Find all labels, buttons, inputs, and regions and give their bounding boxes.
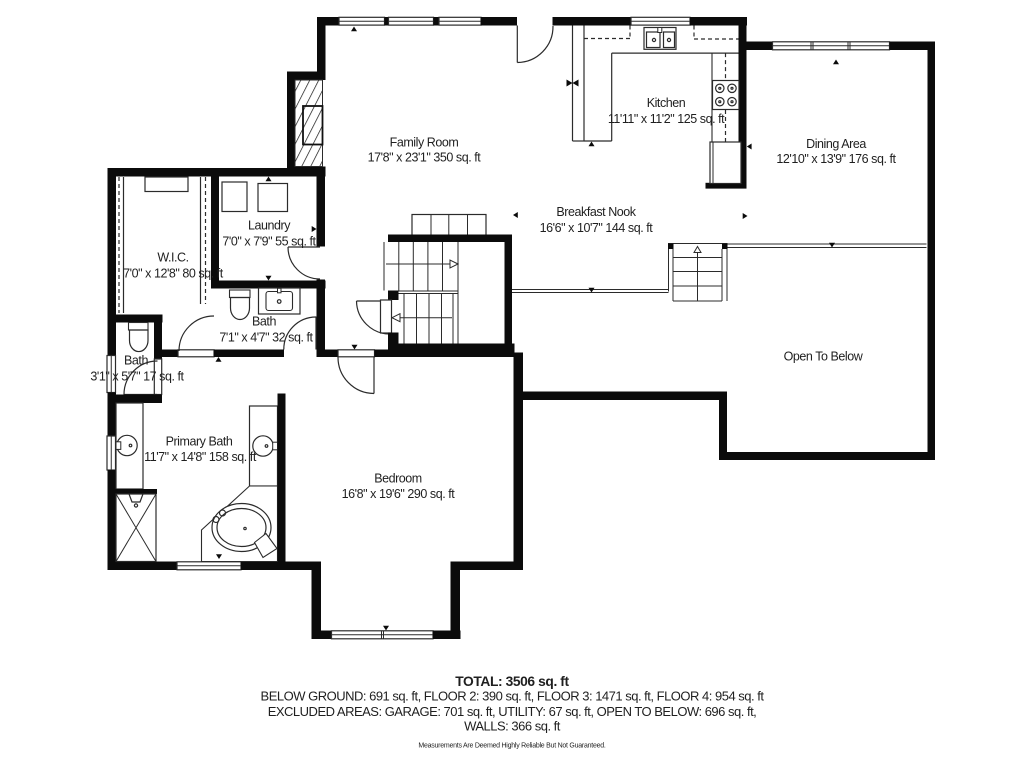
svg-text:TOTAL: 3506 sq. ft: TOTAL: 3506 sq. ft (455, 674, 569, 689)
svg-text:Primary Bath: Primary Bath (166, 435, 233, 449)
svg-text:Bath: Bath (252, 315, 276, 329)
svg-text:Bath: Bath (124, 354, 148, 368)
svg-text:17'8" x 23'1" 350 sq. ft: 17'8" x 23'1" 350 sq. ft (368, 151, 482, 165)
svg-text:Open To Below: Open To Below (784, 350, 864, 364)
svg-text:BELOW GROUND: 691 sq. ft, FLOO: BELOW GROUND: 691 sq. ft, FLOOR 2: 390 s… (261, 689, 765, 704)
svg-text:12'10" x 13'9" 176 sq. ft: 12'10" x 13'9" 176 sq. ft (776, 152, 896, 166)
svg-text:3'1" x 5'7" 17 sq. ft: 3'1" x 5'7" 17 sq. ft (90, 370, 184, 384)
svg-text:Laundry: Laundry (248, 219, 291, 233)
svg-text:W.I.C.: W.I.C. (157, 251, 188, 265)
svg-text:7'1" x 4'7" 32 sq. ft: 7'1" x 4'7" 32 sq. ft (219, 331, 313, 345)
svg-text:EXCLUDED AREAS: GARAGE: 701 sq: EXCLUDED AREAS: GARAGE: 701 sq. ft, UTIL… (268, 704, 757, 719)
svg-text:WALLS: 366 sq. ft: WALLS: 366 sq. ft (464, 719, 561, 734)
svg-text:Bedroom: Bedroom (374, 472, 422, 486)
svg-text:11'7" x 14'8" 158 sq. ft: 11'7" x 14'8" 158 sq. ft (144, 450, 257, 464)
svg-text:7'0" x 7'9" 55 sq. ft: 7'0" x 7'9" 55 sq. ft (222, 235, 316, 249)
svg-text:16'6" x 10'7" 144 sq. ft: 16'6" x 10'7" 144 sq. ft (540, 221, 654, 235)
svg-text:Breakfast Nook: Breakfast Nook (556, 205, 636, 219)
svg-text:Measurements Are Deemed Highly: Measurements Are Deemed Highly Reliable … (418, 743, 605, 750)
svg-text:7'0" x 12'8" 80 sq. ft: 7'0" x 12'8" 80 sq. ft (123, 267, 224, 281)
svg-text:16'8" x 19'6" 290 sq. ft: 16'8" x 19'6" 290 sq. ft (342, 487, 456, 501)
svg-text:Dining Area: Dining Area (806, 137, 866, 151)
svg-text:Family Room: Family Room (390, 136, 459, 150)
svg-text:11'11" x 11'2" 125 sq. ft: 11'11" x 11'2" 125 sq. ft (608, 112, 725, 126)
svg-text:Kitchen: Kitchen (647, 96, 686, 110)
